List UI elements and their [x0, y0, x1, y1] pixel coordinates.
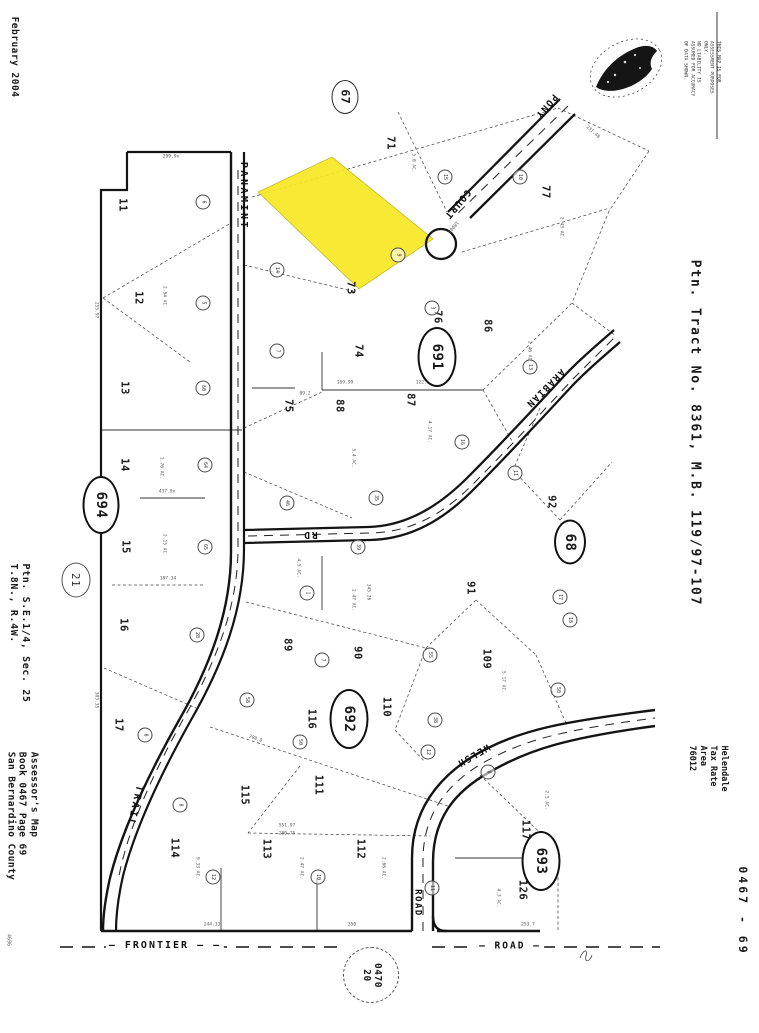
lot-corner-marker: 9	[391, 248, 406, 263]
dimension-label: 2.66 AC.	[380, 857, 385, 879]
page-ref-number: 694	[94, 492, 108, 519]
dimension-label: 253.7	[521, 924, 535, 929]
dimension-label: 5.0 AC.	[410, 153, 415, 172]
lot-corner-number: 15	[443, 174, 448, 180]
lot-corner-marker: 10	[311, 870, 326, 885]
disclaimer-line2: NO LIABILITY IS ASSUMED FOR ACCURACY OF …	[682, 41, 702, 99]
page-ref-693: 693	[522, 831, 561, 891]
lot-corner-number: 8	[485, 770, 490, 773]
section-line: Ptn. S.E.1/4, Sec. 25	[19, 563, 31, 702]
lot-corner-number: 46	[285, 500, 290, 506]
dimension-label: 2.5 AC.	[543, 790, 548, 809]
lot-corner-marker: 1	[300, 586, 315, 601]
parcel-number-13: 13	[119, 381, 130, 395]
parcel-number-89: 89	[282, 638, 293, 652]
road-label-road: — ROAD —	[476, 941, 544, 951]
page-ref-number: 692	[342, 706, 356, 733]
page-ref-694: 694	[83, 476, 120, 534]
dimension-label: 255.97	[93, 302, 98, 319]
lot-corner-marker: 8	[138, 728, 153, 743]
page-ref-number: 691	[430, 344, 444, 371]
survey-mark	[580, 951, 592, 961]
parcel-number-90: 90	[352, 646, 363, 660]
dimension-label: 2.54 AC.	[161, 286, 166, 308]
lot-corner-marker: 60	[196, 381, 211, 396]
lot-corner-marker: 11	[508, 466, 523, 481]
dimension-label: 299.9x	[163, 156, 180, 161]
lot-corner-number: 14	[275, 267, 280, 273]
assessor-map-credit: Assessor's Map Book 0467 Page 69 San Ber…	[5, 752, 40, 881]
lot-corner-number: 28	[195, 632, 200, 638]
dimension-label: 437.9x	[159, 491, 176, 496]
tax-rate-area-text: Helendale Tax Rate Area 76012	[687, 746, 729, 797]
lot-corner-number: 65	[203, 544, 208, 550]
tax-area-line1: Helendale	[719, 746, 730, 797]
county-arrowhead-logo	[580, 27, 672, 109]
lot-corner-number: 10	[316, 874, 321, 880]
page-ref-number: 67	[339, 90, 351, 105]
page-ref-691: 691	[418, 327, 457, 387]
parcel-number-113: 113	[261, 839, 272, 859]
parcel-number-77: 77	[540, 185, 551, 199]
page-ref-number: 693	[534, 848, 548, 875]
lot-corner-number: 16	[460, 439, 465, 445]
lot-corner-marker: 39	[351, 540, 366, 555]
lot-corner-number: 35	[374, 495, 379, 501]
lot-corner-marker: 8	[481, 765, 496, 780]
page-ref-67: 67	[332, 80, 359, 114]
dimension-label: 4.17 AC.	[426, 421, 431, 443]
parcel-number-126: 126	[517, 880, 528, 900]
tax-area-line2: Tax Rate Area	[698, 746, 719, 797]
lot-corner-marker: 6	[196, 195, 211, 210]
lot-corner-number: 17	[558, 594, 563, 600]
dimension-label: 187.34	[160, 578, 177, 583]
lot-corner-marker: 58	[240, 693, 255, 708]
parcel-number-12: 12	[133, 291, 144, 305]
lot-corner-marker: 10	[513, 170, 528, 185]
lot-corner-marker: 50	[293, 735, 308, 750]
dimension-label: 4.3 AC.	[495, 888, 500, 907]
lot-corner-number: 50	[556, 687, 561, 693]
lot-corner-number: 50	[298, 739, 303, 745]
page-ref-number: 21	[71, 573, 82, 587]
lot-corner-marker: 11	[425, 881, 440, 896]
page-ref-692: 692	[330, 689, 369, 749]
lot-corner-number: 12	[426, 749, 431, 755]
page-ref-21: 21	[62, 563, 91, 598]
lot-corner-marker: 14	[270, 263, 285, 278]
disclaimer-text: THIS MAP IS FOR ASSESSMENT PURPOSES ONLY…	[682, 41, 721, 99]
lot-corner-marker: 7	[315, 653, 330, 668]
dimension-label: 2.15 AC.	[161, 534, 166, 556]
parcel-number-116: 116	[306, 709, 317, 729]
lot-corner-marker: 17	[553, 590, 568, 605]
parcel-number-109: 109	[481, 649, 492, 669]
lot-corner-number: 58	[245, 697, 250, 703]
section-township-text: Ptn. S.E.1/4, Sec. 25 T.8N., R.4W.	[7, 563, 31, 702]
assessor-line1: Assessor's Map	[28, 752, 40, 881]
page-ref-number: 68	[563, 533, 577, 551]
road-label-frontier: — FRONTIER — —	[106, 941, 224, 951]
parcel-number-17: 17	[113, 718, 124, 732]
parcel-number-74: 74	[353, 344, 364, 358]
lot-corner-number: 7	[274, 349, 279, 352]
lot-corner-number: 12	[211, 874, 216, 880]
parcel-number-87: 87	[405, 393, 416, 407]
lot-corner-number: 11	[513, 470, 518, 476]
lot-corner-number: 5	[200, 301, 205, 304]
dimension-label: 1.76 AC.	[158, 457, 163, 479]
lot-corner-number: 10	[518, 174, 523, 180]
parcel-number-75: 75	[283, 399, 294, 413]
lot-corner-number: 39	[356, 544, 361, 550]
parcel-number-73: 73	[345, 281, 356, 295]
lot-corner-number: 8	[142, 733, 147, 736]
lot-corner-marker: 3	[425, 301, 440, 316]
lot-corner-marker: 15	[438, 170, 453, 185]
lot-corner-number: 55	[428, 652, 433, 658]
lot-corner-marker: 5	[196, 296, 211, 311]
dimension-label: 244.33	[204, 924, 221, 929]
road-label-rd: RD	[302, 529, 317, 539]
assessor-map-page: February 2004 THIS MAP IS FOR ASSESSMENT…	[0, 0, 759, 1033]
lot-corner-number: 7	[319, 658, 324, 661]
dimension-label: 280.75	[279, 833, 296, 838]
disclaimer-line1: THIS MAP IS FOR ASSESSMENT PURPOSES ONLY…	[701, 41, 721, 99]
lot-corner-marker: 18	[563, 613, 578, 628]
lot-corner-number: 64	[203, 462, 208, 468]
lot-corner-number: 18	[568, 617, 573, 623]
road-label-road: ROAD	[413, 889, 422, 917]
assessor-line2: Book 0467 Page 69	[16, 752, 28, 881]
parcel-number-71: 71	[385, 136, 396, 150]
lot-corner-number: 6	[200, 200, 205, 203]
parcel-number-11: 11	[117, 198, 128, 212]
dimension-label: 5.17 AC.	[500, 671, 505, 693]
dimension-label: 350	[348, 924, 356, 929]
tract-title: Ptn. Tract No. 8361, M.B. 119/97-107	[689, 260, 702, 607]
dimension-label: 551.97	[279, 825, 296, 830]
parcel-number-110: 110	[381, 697, 392, 717]
lot-corner-number: 38	[433, 717, 438, 723]
dimension-label: 2.47 AC.	[350, 589, 355, 611]
lot-corner-marker: 12	[421, 745, 436, 760]
parcel-number-115: 115	[239, 785, 250, 805]
parcel-map: February 2004 THIS MAP IS FOR ASSESSMENT…	[0, 0, 759, 1033]
lot-corner-marker: 12	[206, 870, 221, 885]
parcel-number-111: 111	[313, 775, 324, 795]
dimension-label: 4.5 AC.	[295, 558, 300, 577]
dimension-label: 169.99	[337, 382, 354, 387]
parcel-number-88: 88	[334, 399, 345, 413]
lot-corner-marker: 55	[423, 648, 438, 663]
parcel-number-16: 16	[118, 618, 129, 632]
dimension-label: 2.43 AC.	[558, 217, 563, 239]
parcel-number-15: 15	[120, 540, 131, 554]
assessor-line3: San Bernardino County	[5, 752, 17, 881]
road-label-panamint: PANAMINT	[238, 162, 248, 230]
parcel-number-14: 14	[119, 458, 130, 472]
lot-corner-marker: 35	[369, 491, 384, 506]
dimension-label: 9.33 AC.	[194, 857, 199, 879]
dimension-label: 303.35	[93, 692, 98, 709]
lot-corner-number: 1	[304, 591, 309, 594]
lot-corner-marker: 28	[190, 628, 205, 643]
corner-code: 4696	[6, 934, 11, 946]
dimension-label: 2.47 AC.	[298, 857, 303, 879]
book-page-code: 0467 - 69	[736, 866, 748, 955]
parcel-number-91: 91	[465, 581, 476, 595]
tax-area-line3: 76012	[687, 746, 698, 797]
lot-corner-number: 3	[429, 306, 434, 309]
lot-corner-marker: 13	[523, 360, 538, 375]
adjacent-page-number: 047020	[360, 963, 381, 988]
dimension-label: 5.4 AC.	[350, 448, 355, 467]
adjacent-page-ref: 047020	[343, 947, 399, 1003]
parcel-number-92: 92	[546, 495, 557, 509]
page-ref-68: 68	[554, 520, 586, 565]
lot-corner-number: 60	[201, 385, 206, 391]
lot-corner-marker: 8	[173, 798, 188, 813]
lot-corner-number: 8	[177, 803, 182, 806]
lot-corner-number: 11	[430, 885, 435, 891]
map-date: February 2004	[9, 17, 19, 98]
lot-corner-marker: 38	[428, 713, 443, 728]
parcel-number-114: 114	[169, 838, 180, 858]
lot-corner-marker: 50	[551, 683, 566, 698]
parcel-number-112: 112	[355, 839, 366, 859]
lot-corner-marker: 64	[198, 458, 213, 473]
lot-corner-number: 13	[528, 364, 533, 370]
township-line: T.8N., R.4W.	[7, 563, 19, 702]
parcel-number-86: 86	[482, 319, 493, 333]
lot-corner-marker: 7	[270, 344, 285, 359]
lot-corner-number: 9	[395, 253, 400, 256]
lot-corner-marker: 16	[455, 435, 470, 450]
dimension-label: 345.26	[365, 584, 370, 601]
lot-corner-marker: 46	[280, 496, 295, 511]
lot-corner-marker: 65	[198, 540, 213, 555]
dimension-label: 89.2	[299, 393, 310, 398]
